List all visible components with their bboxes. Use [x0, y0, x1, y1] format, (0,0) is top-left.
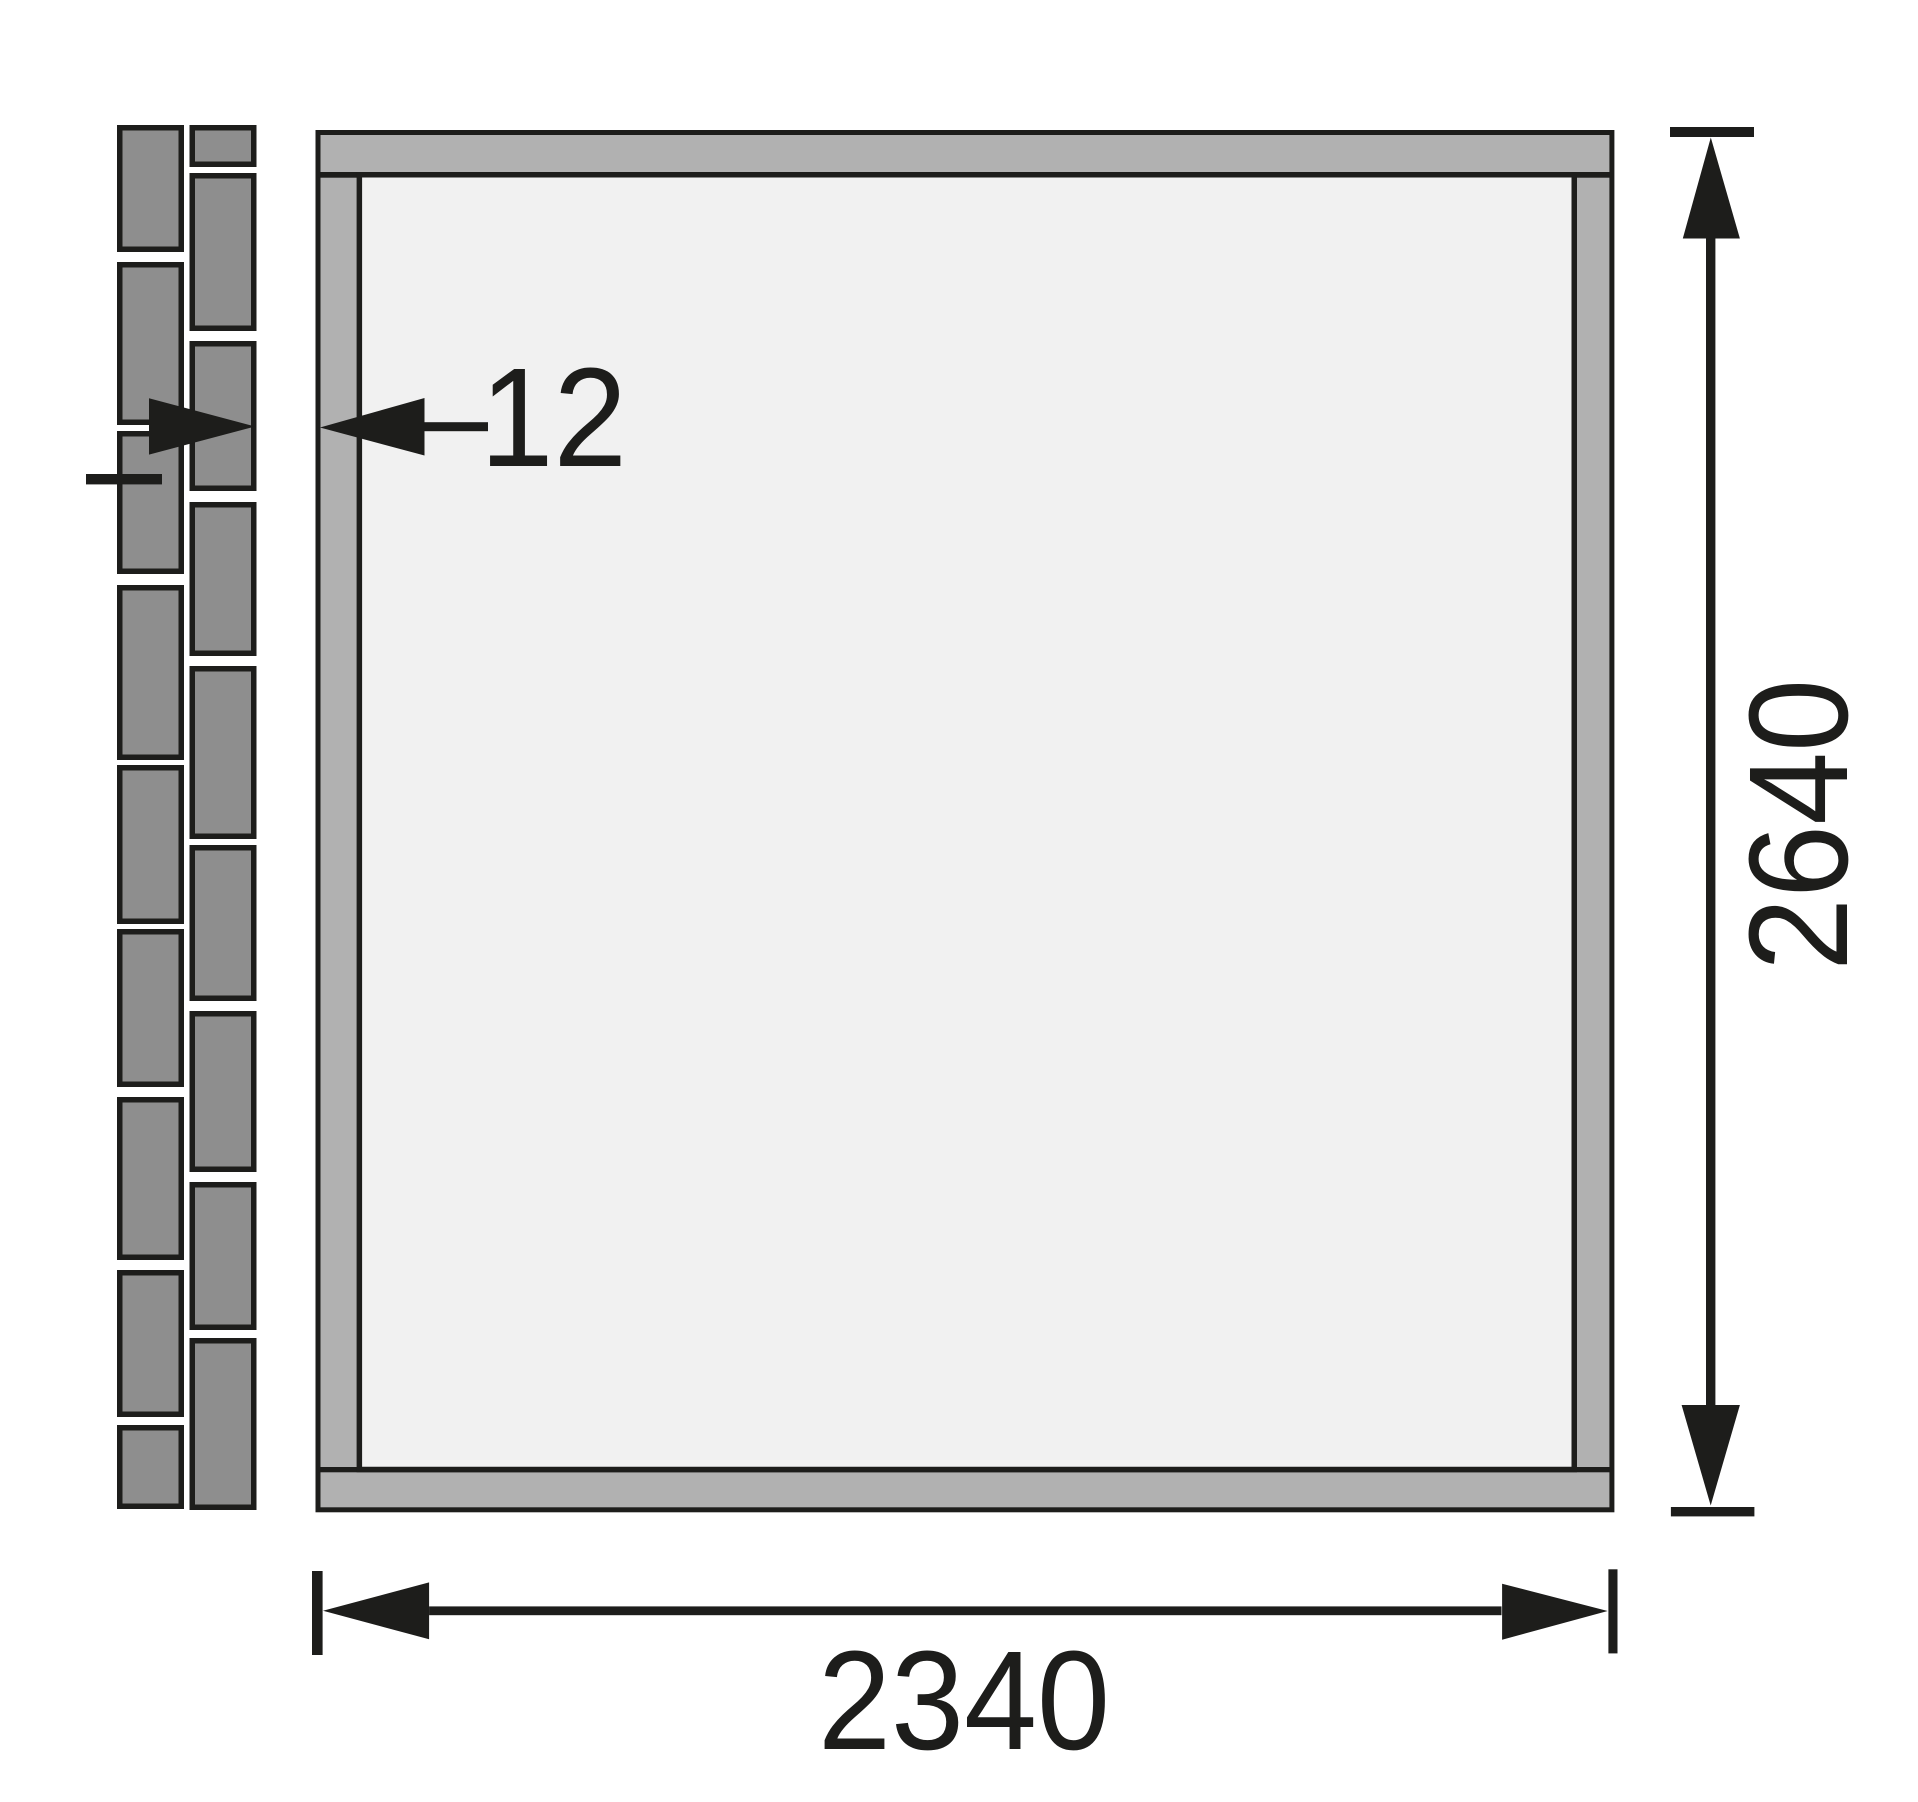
svg-text:2640: 2640: [1719, 679, 1877, 971]
svg-text:2340: 2340: [818, 1621, 1110, 1779]
svg-text:12: 12: [480, 338, 627, 496]
